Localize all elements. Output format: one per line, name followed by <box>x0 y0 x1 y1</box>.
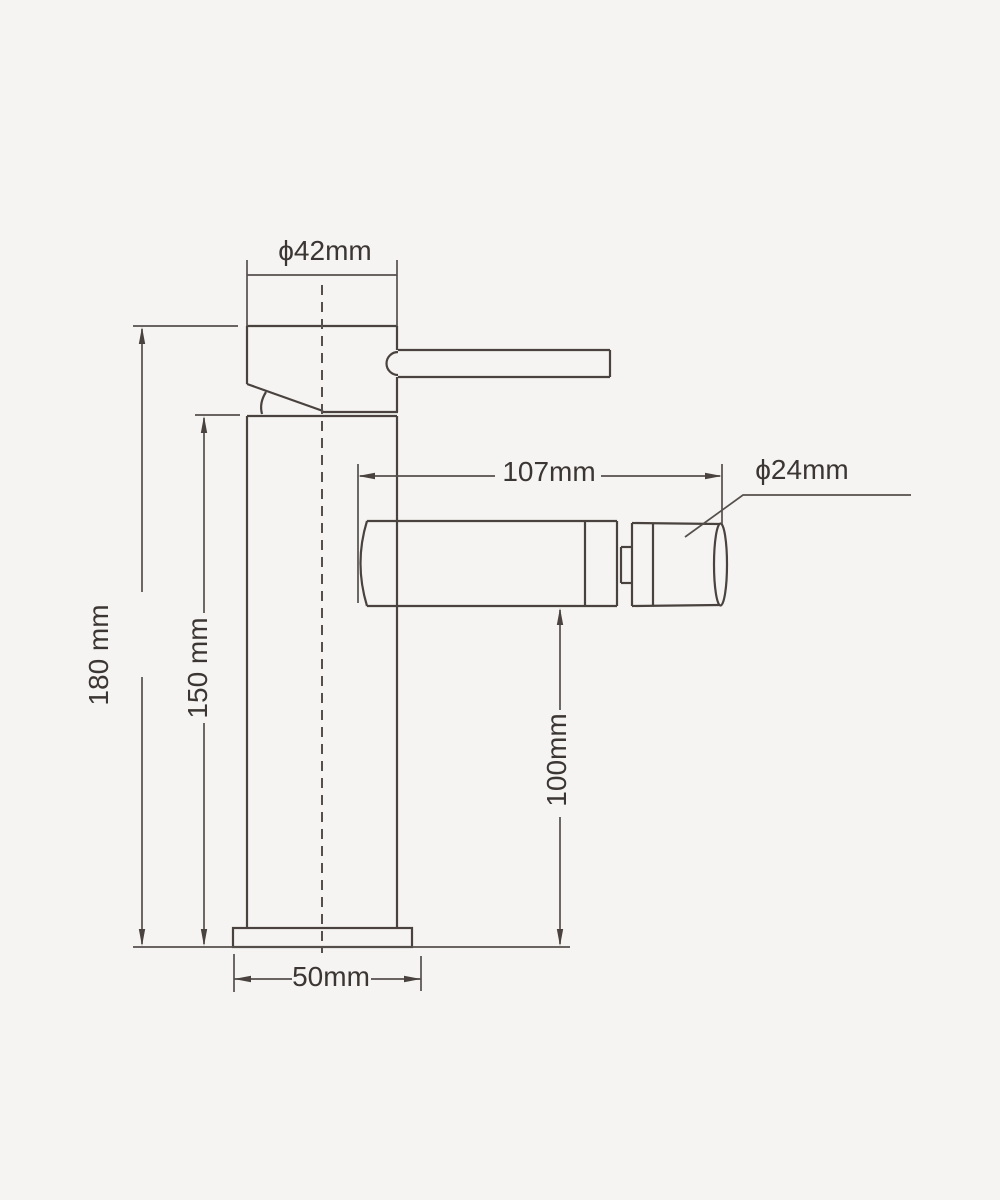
dimension-base-width: 50mm <box>234 954 421 992</box>
dimension-spout-reach: 107mm <box>358 456 722 603</box>
dimension-head-diameter: ϕ42mm <box>247 235 397 326</box>
label-spout-diameter: ϕ24mm <box>755 454 848 485</box>
label-spout-reach: 107mm <box>502 456 595 487</box>
label-spout-outlet-height: 100mm <box>541 713 572 806</box>
aerator-end-cap <box>714 524 727 606</box>
spout <box>361 521 728 606</box>
dimension-body-height: 150 mm <box>182 415 240 946</box>
faucet-outline <box>233 285 727 953</box>
diagram-canvas: ϕ42mm 180 mm 150 mm 10 <box>0 0 1000 1200</box>
label-base-width: 50mm <box>292 961 370 992</box>
label-total-height: 180 mm <box>83 604 114 705</box>
label-head-diameter: ϕ42mm <box>278 235 371 266</box>
aerator <box>632 523 727 606</box>
label-body-height: 150 mm <box>182 617 213 718</box>
joint-arc <box>261 392 266 414</box>
spout-left-cap <box>361 521 368 606</box>
dimension-spout-outlet-height: 100mm <box>541 608 572 946</box>
lever-handle <box>387 350 610 377</box>
faucet-dimension-diagram: ϕ42mm 180 mm 150 mm 10 <box>0 0 1000 1200</box>
dimension-total-height: 180 mm <box>83 326 238 946</box>
